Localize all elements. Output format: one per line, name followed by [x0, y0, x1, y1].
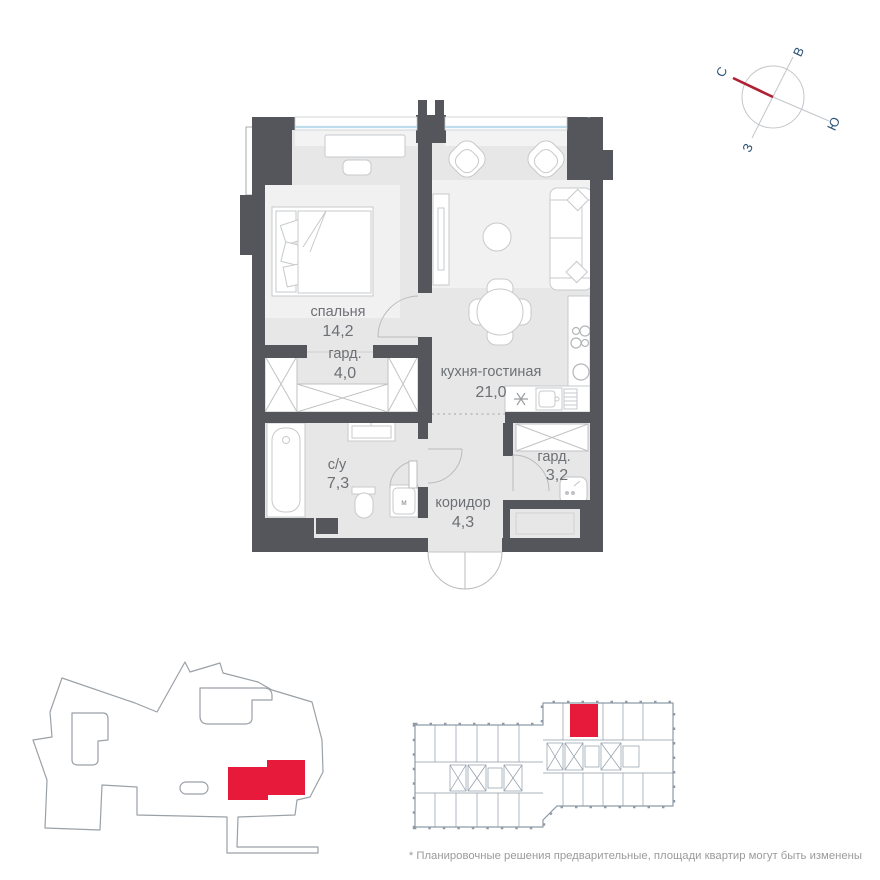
main-floor-plan: м — [240, 100, 613, 589]
coffee-table — [483, 223, 511, 251]
bedroom-label: спальня — [310, 304, 365, 320]
compass-west-label: З — [739, 141, 756, 155]
wardrobe1-area: 4,0 — [334, 365, 356, 382]
bathroom-door-leaf — [409, 461, 417, 488]
compass-south-label: Ю — [824, 115, 843, 133]
kitchen-living-label: кухня-гостиная — [441, 364, 542, 380]
bathroom-label: с/у — [328, 457, 347, 473]
kitchen-living-area: 21,0 — [475, 384, 506, 401]
bed — [272, 207, 373, 296]
bathroom-area: 7,3 — [327, 475, 349, 492]
apartment-plan-page: м — [0, 0, 880, 880]
corridor-label: коридор — [435, 495, 490, 511]
site-plan-silhouette — [33, 662, 323, 853]
wardrobe2-label: гард. — [537, 449, 570, 465]
bedroom-area: 14,2 — [322, 323, 353, 340]
floor-plate-minimap — [415, 703, 673, 827]
corridor-area: 4,3 — [452, 514, 474, 531]
entrance-door — [428, 552, 502, 589]
compass-north-label: С — [713, 64, 731, 79]
bathtub — [267, 423, 305, 517]
highlighted-apartment-unit — [570, 704, 598, 737]
wardrobe1-label: гард. — [328, 346, 361, 362]
disclaimer-text: * Планировочные решения предварительные,… — [409, 850, 862, 862]
tv-console — [433, 194, 449, 285]
wardrobe2-area: 3,2 — [546, 467, 568, 484]
compass-east-label: В — [790, 45, 807, 59]
washing-machine-label: м — [401, 498, 407, 507]
shaft-niche — [516, 513, 574, 534]
inner-building-outline — [180, 782, 208, 794]
sofa — [550, 188, 592, 290]
compass-rose-icon: С В Ю З — [713, 45, 843, 155]
plan-canvas: м — [0, 0, 880, 880]
compass-north-needle — [733, 78, 773, 97]
